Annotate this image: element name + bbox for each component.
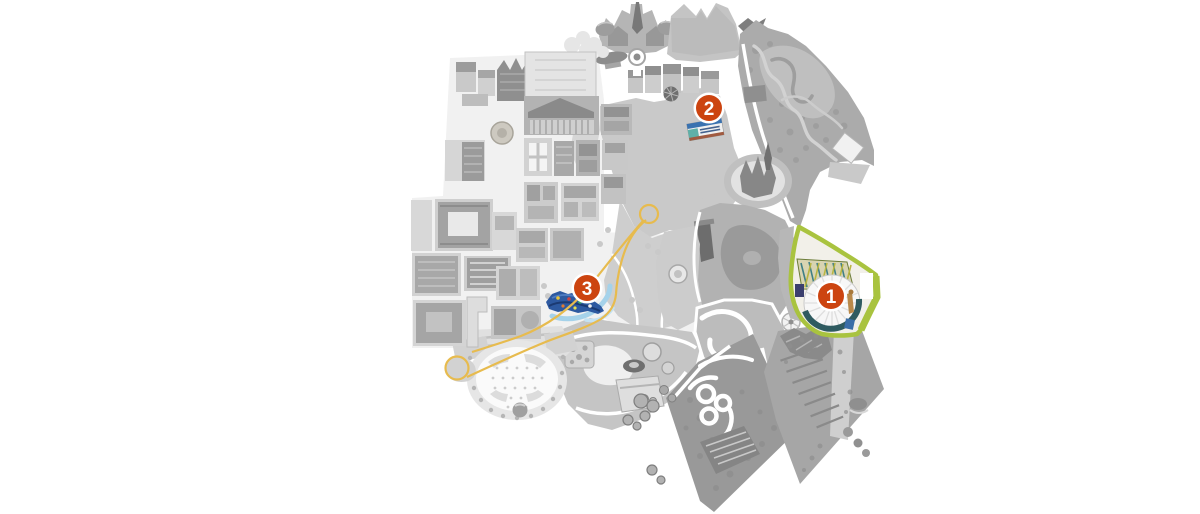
- svg-text:1: 1: [826, 287, 837, 308]
- svg-text:3: 3: [582, 279, 593, 300]
- svg-text:2: 2: [704, 99, 715, 120]
